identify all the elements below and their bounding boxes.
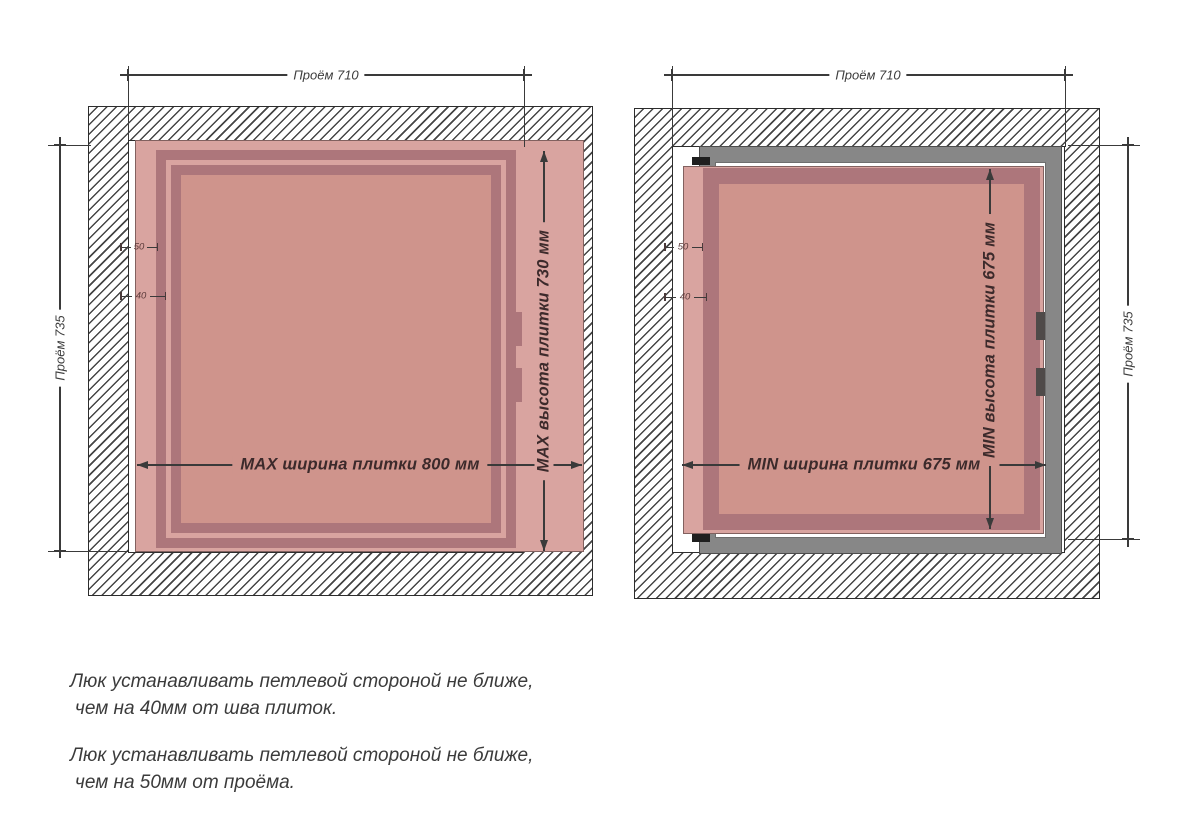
dim-line <box>664 297 676 298</box>
arrow-left <box>137 461 148 469</box>
dim-label-opening-height: Проём 735 <box>53 309 68 386</box>
dim-label-tile-width: MIN ширина плитки 675 мм <box>740 456 989 475</box>
dim-tick <box>165 292 166 300</box>
extension-line <box>672 66 673 146</box>
arrow-up <box>540 151 548 162</box>
dim-line <box>150 296 166 297</box>
installation-diagram-page: Проём 710 Проём 735 MAX ширина плитки 80… <box>0 0 1200 840</box>
arrow-left <box>682 461 693 469</box>
dim-tick <box>664 293 665 301</box>
note-line: Люк устанавливать петлевой стороной не б… <box>70 742 533 769</box>
dim-label-opening-height: Проём 735 <box>1121 305 1136 382</box>
extension-line <box>1068 145 1140 146</box>
hinge-tab <box>512 312 522 346</box>
dim-label-tile-height: MAX высота плитки 730 мм <box>535 222 554 480</box>
note-hinge-opening: Люк устанавливать петлевой стороной не б… <box>70 742 533 796</box>
dim-label-opening-width: Проём 710 <box>829 68 906 83</box>
extension-line <box>128 66 129 140</box>
dim-line <box>120 296 132 297</box>
mounting-clip <box>692 157 710 165</box>
arrow-up <box>986 169 994 180</box>
arrow-down <box>986 518 994 529</box>
extension-line <box>48 145 91 146</box>
dim-label-offset-50: 50 <box>134 242 145 253</box>
dim-label-offset-40: 40 <box>136 291 147 302</box>
extension-line <box>1068 539 1140 540</box>
hinge-tab <box>1036 312 1045 340</box>
mounting-clip <box>692 534 710 542</box>
dim-tick <box>664 243 665 251</box>
hinge-tab <box>1036 368 1045 396</box>
arrow-right <box>571 461 582 469</box>
dim-tick <box>120 243 121 251</box>
dim-label-offset-40: 40 <box>680 292 691 303</box>
note-hinge-seam: Люк устанавливать петлевой стороной не б… <box>70 668 533 722</box>
dim-tick <box>702 243 703 251</box>
note-line: чем на 40мм от шва плиток. <box>70 695 533 722</box>
arrow-right <box>1035 461 1046 469</box>
note-line: Люк устанавливать петлевой стороной не б… <box>70 668 533 695</box>
dim-label-tile-width: MAX ширина плитки 800 мм <box>232 456 487 475</box>
extension-line <box>48 551 128 552</box>
dim-tick <box>120 292 121 300</box>
note-line: чем на 50мм от проёма. <box>70 769 533 796</box>
dim-tick <box>157 243 158 251</box>
hinge-tab <box>512 368 522 402</box>
dim-tick <box>706 293 707 301</box>
extension-line <box>1065 66 1066 147</box>
dim-label-opening-width: Проём 710 <box>287 68 364 83</box>
extension-line <box>524 66 525 147</box>
hatch-door-ring <box>171 165 501 533</box>
arrow-down <box>540 540 548 551</box>
dim-label-tile-height: MIN высота плитки 675 мм <box>981 214 1000 466</box>
dim-label-offset-50: 50 <box>678 242 689 253</box>
